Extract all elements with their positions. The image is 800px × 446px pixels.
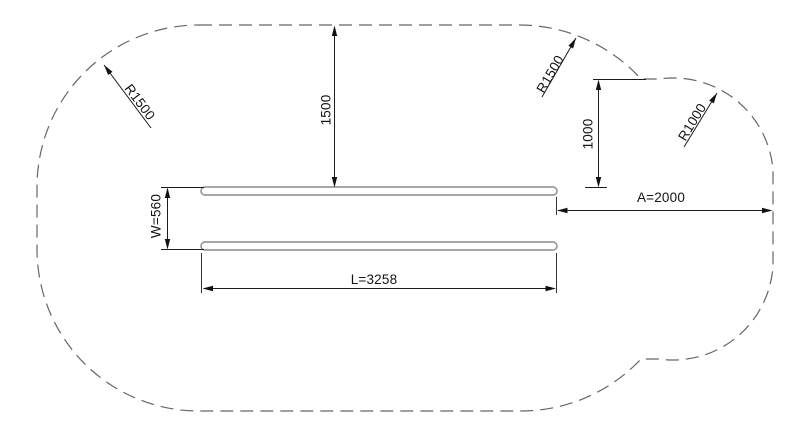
arrowheads [102,26,773,292]
arrow-length-right [546,286,557,291]
equipment-planks [201,187,557,250]
boundary-outline-path [37,25,773,411]
arrow-length-left [203,286,214,291]
arrow-radius-top-right [568,37,578,49]
safety-zone-drawing: R1500 1500 R1500 1000 R1000 A=2000 W=560… [0,0,800,446]
arrow-radius-top-left [102,63,113,75]
arrow-width-down [165,239,170,250]
label-radius-top-right: R1500 [534,53,567,96]
safety-zone-boundary [37,25,773,411]
label-vertical-clearance: 1500 [319,95,334,126]
arrow-width-up [165,188,170,199]
arrow-1000-up [596,80,601,91]
label-equipment-length: L=3258 [351,272,398,287]
arrow-1500-up [332,26,337,37]
plank-top [201,187,557,195]
label-side-clearance: A=2000 [637,190,685,205]
radius-leader-lines [104,38,717,147]
dimension-labels: R1500 1500 R1500 1000 R1000 A=2000 W=560… [122,53,710,287]
label-radius-right: R1000 [675,101,709,144]
label-step-clearance: 1000 [581,119,596,150]
arrow-radius-right [709,92,719,104]
arrow-1000-down [596,177,601,188]
arrow-1500-down [332,177,337,188]
label-radius-top-left: R1500 [122,81,159,123]
label-equipment-width: W=560 [149,194,164,238]
plank-bottom [201,242,557,250]
arrow-clearance-right [762,208,773,213]
technical-drawing-canvas: R1500 1500 R1500 1000 R1000 A=2000 W=560… [0,0,800,446]
arrow-clearance-left [557,208,568,213]
